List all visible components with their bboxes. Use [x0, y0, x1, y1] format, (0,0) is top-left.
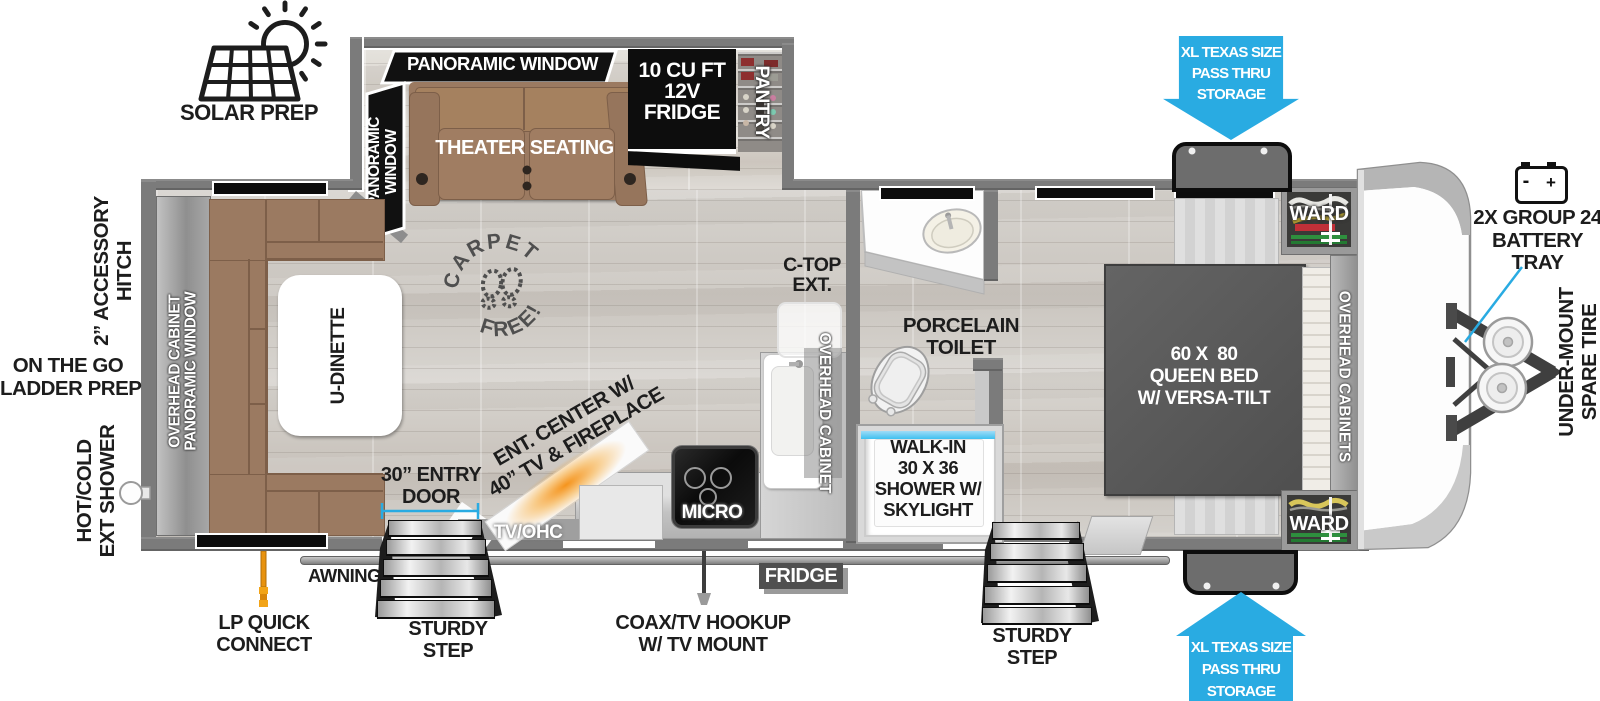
svg-text:-: - — [1523, 170, 1530, 192]
svg-text:CARPET: CARPET — [438, 228, 548, 297]
svg-text:FREE!: FREE! — [471, 294, 552, 351]
svg-text:+: + — [1546, 173, 1556, 192]
